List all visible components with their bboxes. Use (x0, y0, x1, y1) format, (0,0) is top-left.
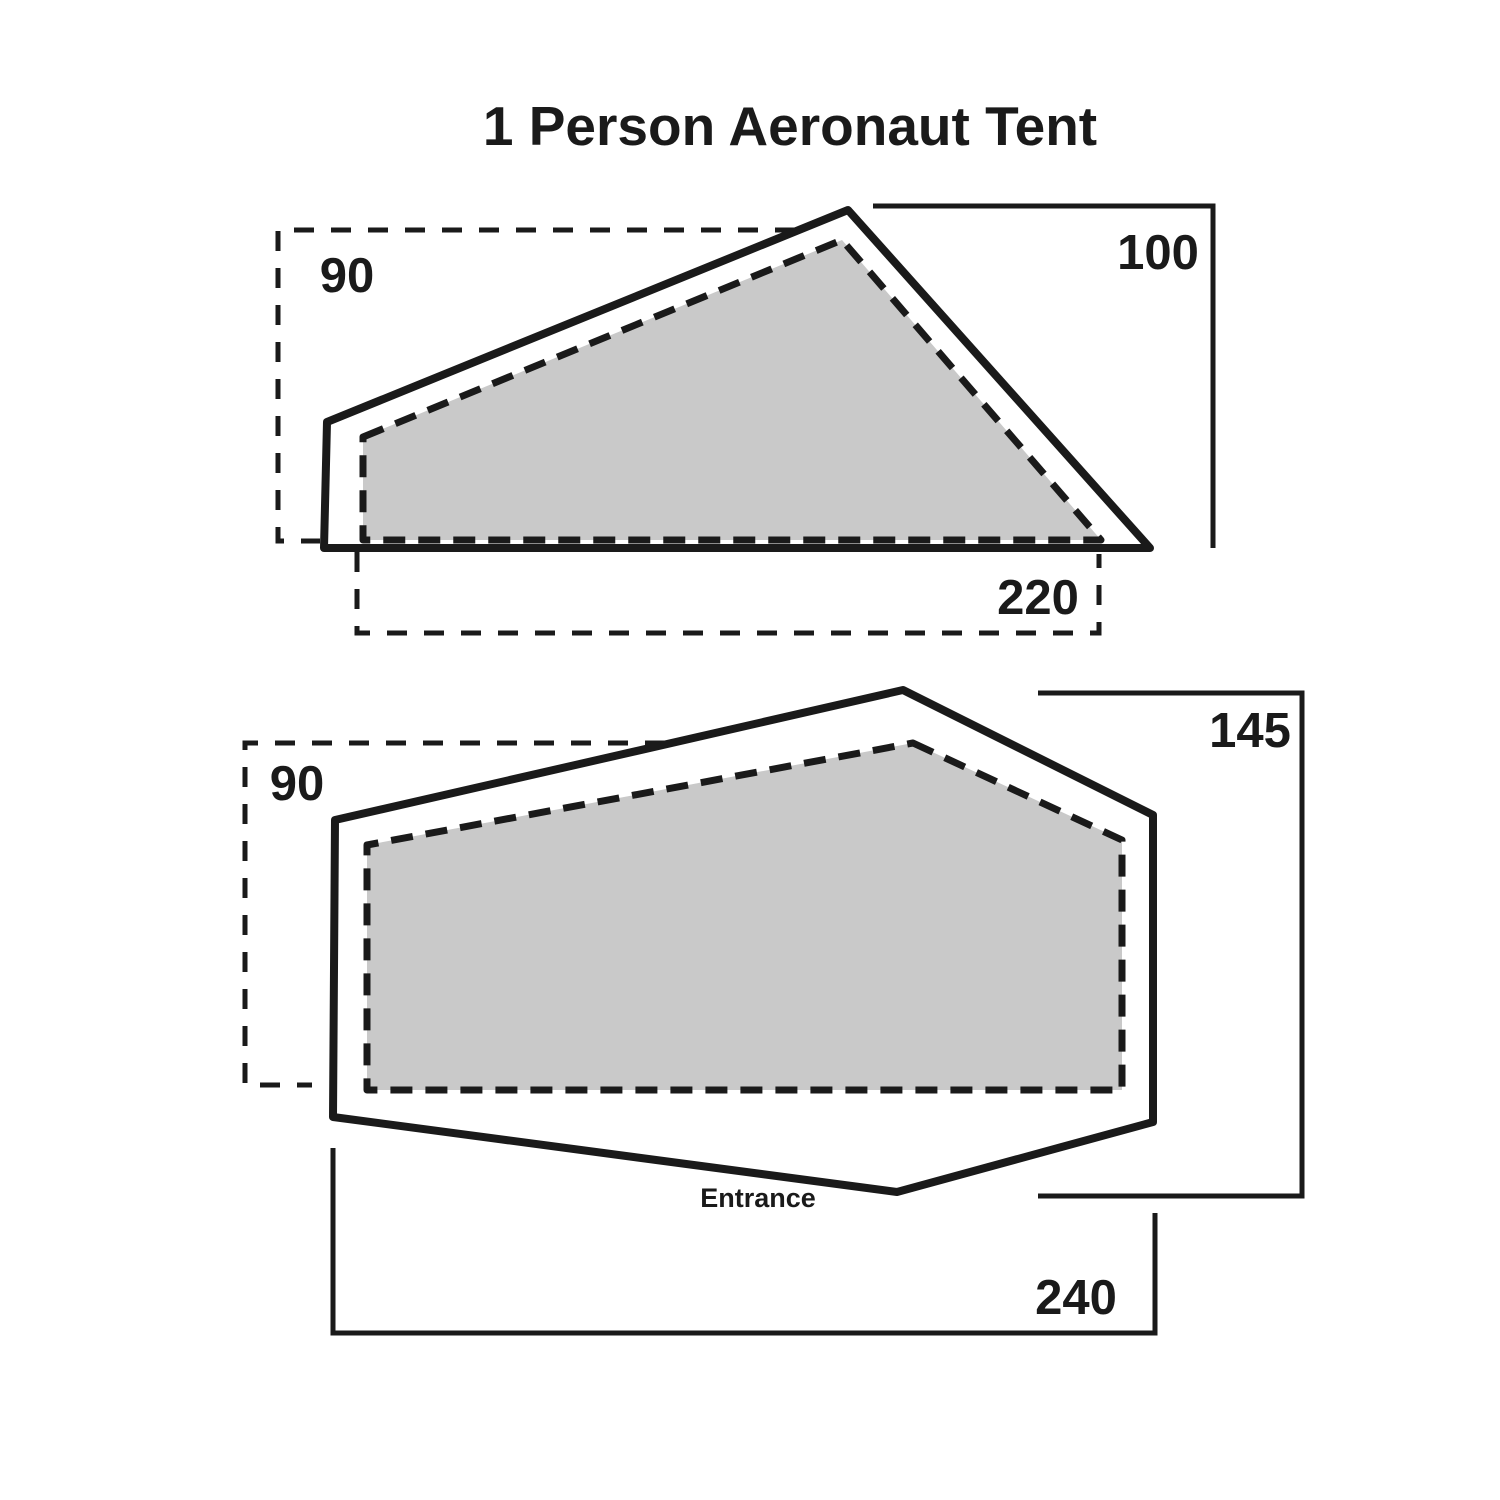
floor-length-measure-bracket (333, 1148, 1155, 1333)
side-length-extent-dashes (357, 552, 1099, 633)
entrance-label: Entrance (700, 1183, 816, 1213)
side-view-diagram: 90 100 220 (278, 206, 1213, 633)
tent-spec-diagram-page: 1 Person Aeronaut Tent 90 100 220 (0, 0, 1500, 1500)
page-title: 1 Person Aeronaut Tent (483, 95, 1097, 157)
floor-length-label: 240 (1035, 1271, 1117, 1325)
side-height-label: 100 (1117, 226, 1199, 280)
floor-inner-width-label: 90 (270, 757, 325, 811)
floor-view-diagram: 90 145 240 Entrance (245, 690, 1302, 1333)
tent-dimensions-drawing: 1 Person Aeronaut Tent 90 100 220 (0, 0, 1500, 1500)
floor-width-label: 145 (1209, 704, 1291, 758)
floor-inner-shape (367, 743, 1122, 1090)
side-length-label: 220 (997, 571, 1079, 625)
side-inner-width-label: 90 (320, 249, 375, 303)
side-inner-tent-shape (363, 240, 1101, 540)
